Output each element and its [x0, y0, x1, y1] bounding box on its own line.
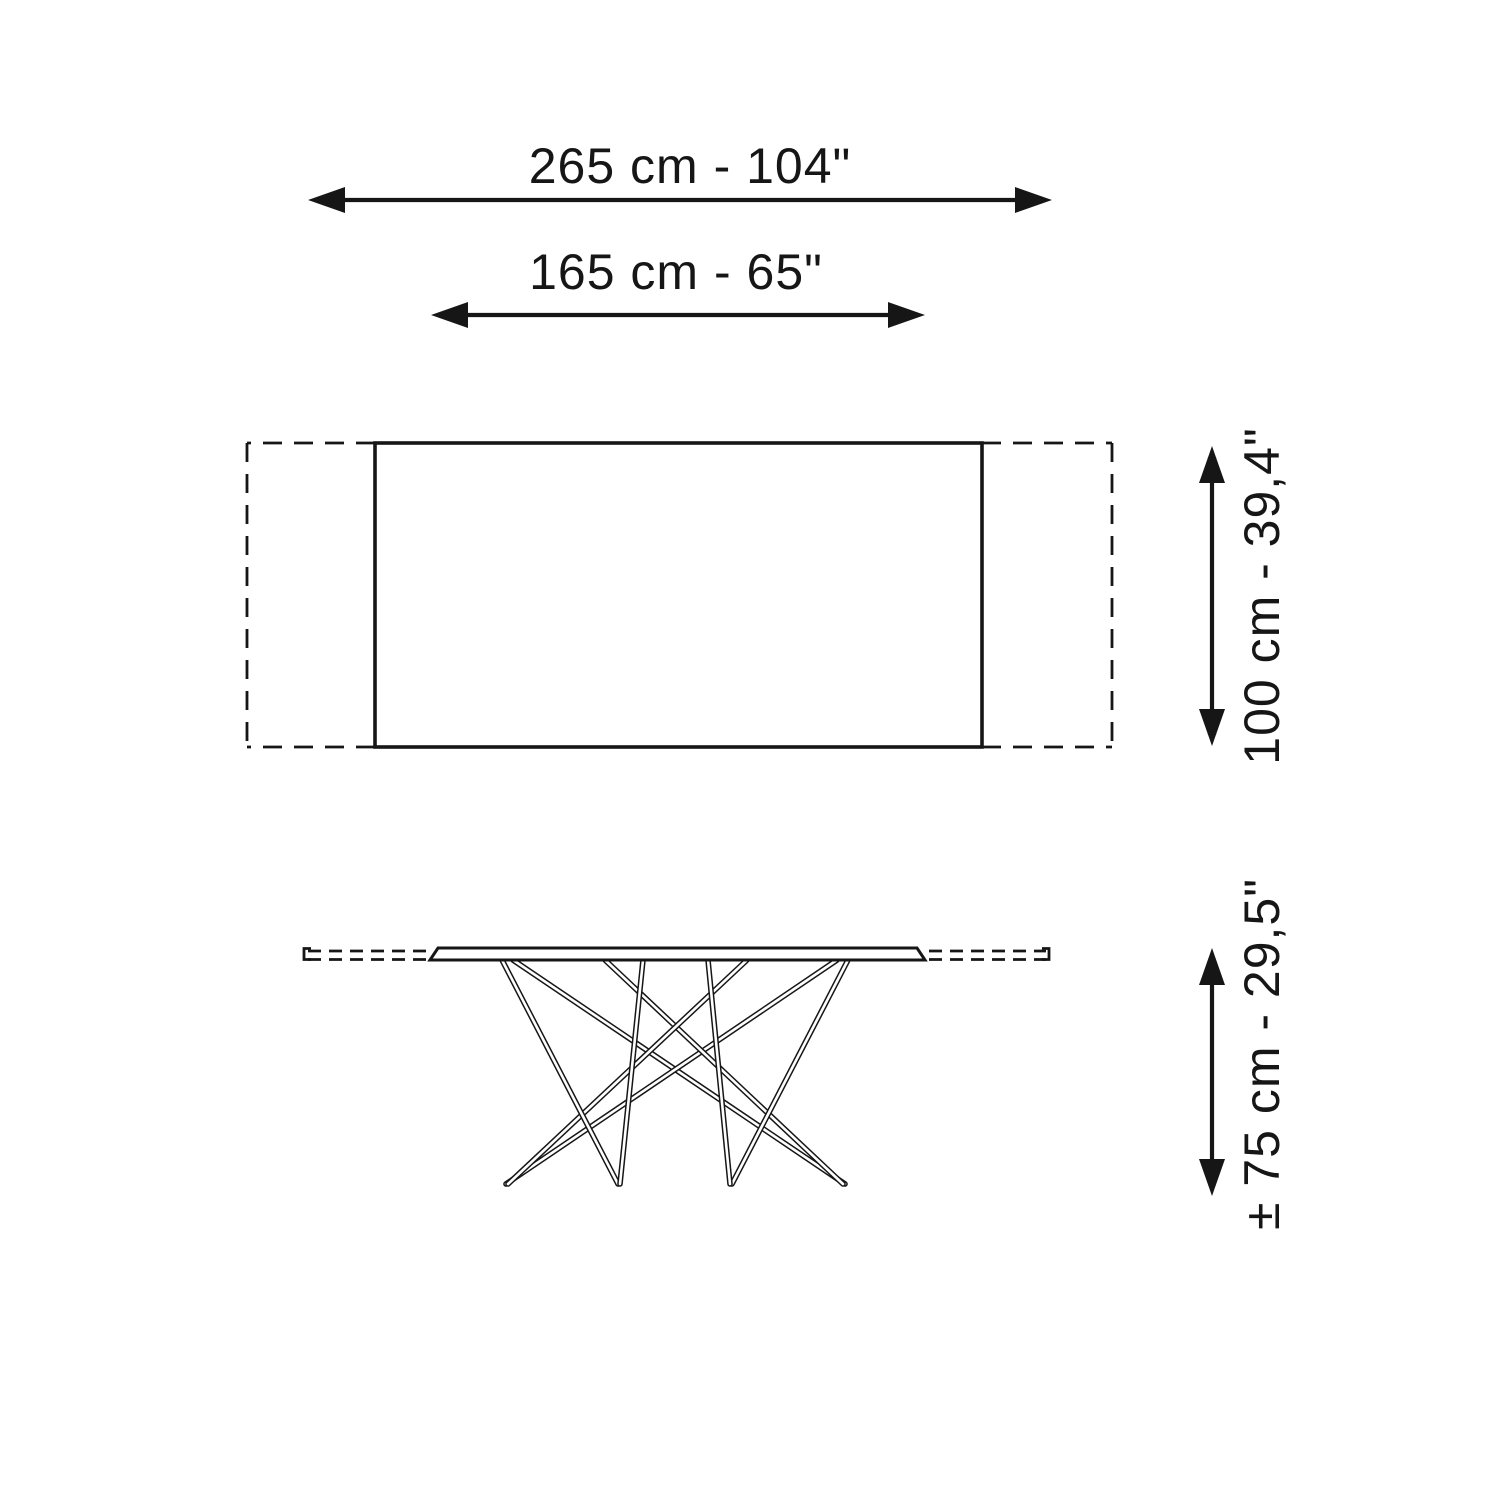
- top-view: [247, 443, 1112, 747]
- dimension-diagram: 265 cm - 104" 165 cm - 65" 100 cm - 39,4…: [0, 0, 1500, 1500]
- arrow-head-left: [431, 302, 468, 328]
- closed-width-arrow: [431, 302, 925, 328]
- arrow-head-right: [888, 302, 925, 328]
- dimension-label-height: ± 75 cm - 29,5": [1237, 878, 1287, 1230]
- dimension-label-depth: 100 cm - 39,4": [1237, 427, 1287, 764]
- dimension-label-closed-width: 165 cm - 65": [529, 247, 823, 297]
- dimension-label-extended-width: 265 cm - 104": [529, 141, 852, 191]
- arrow-head-right: [1015, 187, 1052, 213]
- table-legs: [502, 960, 848, 1184]
- side-view-extension-leaf-right: [929, 949, 1049, 960]
- top-view-tabletop: [375, 443, 982, 747]
- arrow-head-left: [308, 187, 345, 213]
- height-arrow: [1199, 948, 1225, 1196]
- side-view-extension-leaf-left: [304, 949, 426, 960]
- arrow-head-bottom: [1199, 709, 1225, 746]
- side-view: [304, 948, 1049, 1184]
- depth-arrow: [1199, 446, 1225, 746]
- arrow-head-bottom: [1199, 1159, 1225, 1196]
- arrow-head-top: [1199, 446, 1225, 483]
- arrow-head-top: [1199, 948, 1225, 985]
- side-view-tabletop: [430, 948, 925, 960]
